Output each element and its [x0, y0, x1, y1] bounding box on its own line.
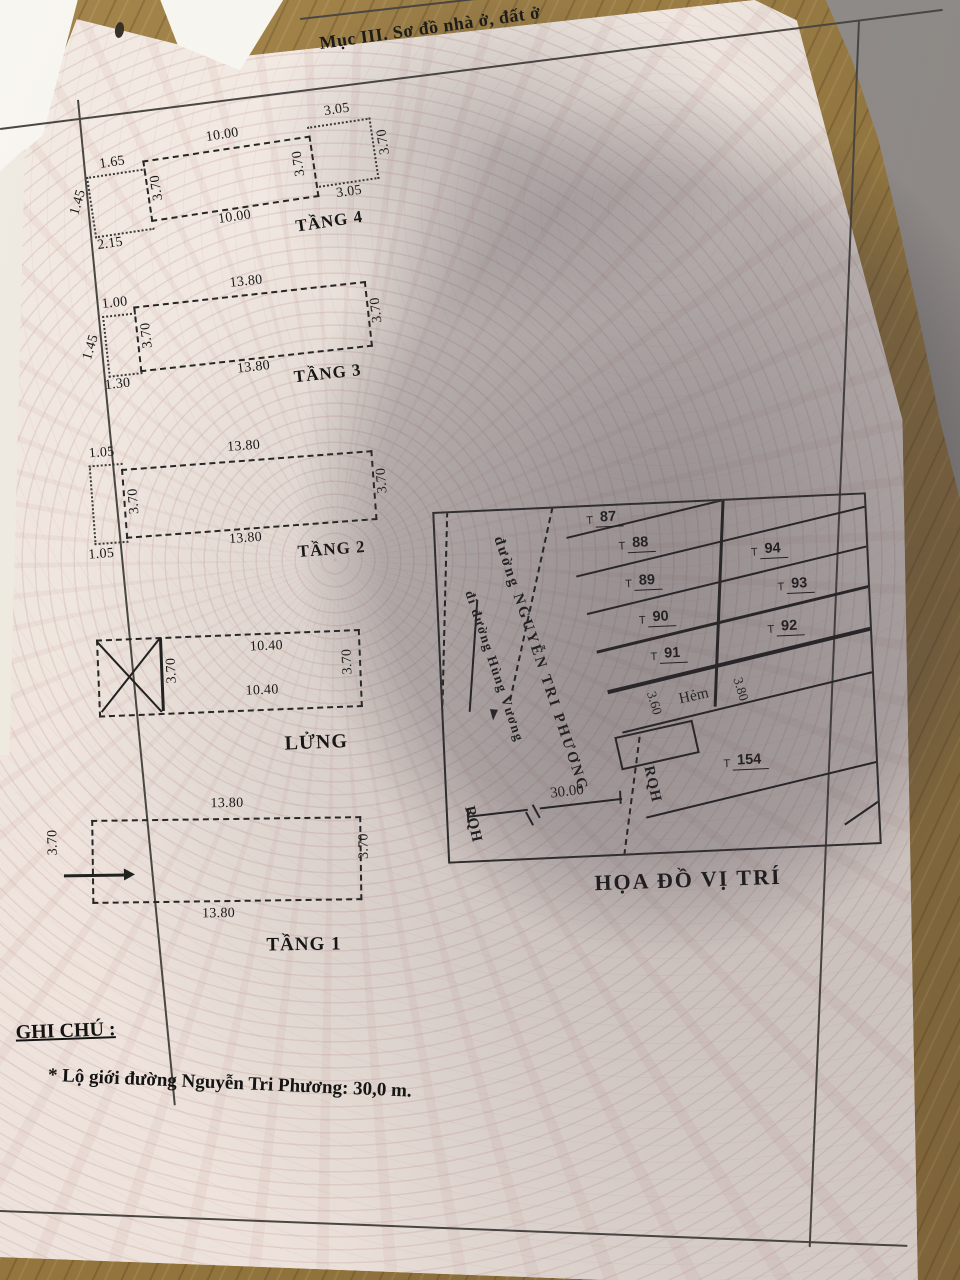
lung-dim-mid: 10.40: [245, 682, 279, 699]
lot-91: T91: [650, 644, 688, 664]
location-map: RQH đường NGUYỄN TRI PHƯƠNG đi đường Hùn…: [438, 480, 888, 915]
street-direction-arrow-head: [489, 709, 498, 721]
notes-line-1: * Lộ giới đường Nguyễn Tri Phương: 30,0 …: [47, 1065, 412, 1103]
lung-label: LỬNG: [284, 730, 348, 756]
tang1-outline: [91, 816, 362, 904]
road-width-label: 30.00: [549, 782, 584, 803]
tang1-dim-left: 3.70: [45, 830, 61, 856]
tang3-dim-bottom: 13.80: [236, 358, 271, 378]
road-width-line: [468, 798, 622, 818]
lot-line-87-top: [555, 492, 822, 506]
small-structure-outline: [614, 720, 699, 771]
tang2-dim-bottom: 13.80: [229, 530, 263, 548]
tang4-dim-bottom: 10.00: [217, 207, 252, 228]
tang2-label: TẦNG 2: [297, 537, 366, 562]
lot-column-boundary-line: [714, 495, 725, 707]
lot-90: T90: [638, 607, 676, 627]
tang2-dim-left: 3.70: [126, 488, 144, 515]
tang2-lext-top: 1.05: [88, 445, 115, 463]
tang4-rext-bottom: 3.05: [335, 183, 363, 203]
tang3-left-extension: [102, 312, 143, 377]
lot-94: T94: [750, 539, 788, 559]
rqh-left-dashed-line: [437, 511, 448, 863]
alley-label: Hẻm: [677, 684, 710, 708]
alley-width-right-label: 3.80: [730, 676, 752, 703]
tang1-dim-right: 3.70: [356, 833, 372, 859]
lung-outline: [96, 629, 363, 718]
map-corner-diagonal: [844, 798, 881, 826]
notes-heading: GHI CHÚ :: [15, 1018, 116, 1044]
floor-plan-tang1: 13.80 13.80 3.70 3.70 TẦNG 1: [57, 784, 404, 969]
tang1-entry-arrow-head: [124, 868, 135, 880]
lot-93: T93: [777, 574, 815, 594]
lot-88: T88: [618, 533, 656, 553]
road-width-tick-right: [619, 791, 622, 804]
tang2-outline: [121, 450, 378, 539]
tang4-right-extension: [307, 117, 379, 188]
lung-dim-divider: 3.70: [164, 657, 181, 683]
tang3-lext-side: 1.45: [80, 333, 103, 362]
lung-dim-top: 10.40: [250, 638, 284, 655]
tang2-dim-top: 13.80: [227, 438, 261, 456]
street-name-label: đường NGUYỄN TRI PHƯƠNG: [489, 534, 591, 794]
lot-92: T92: [767, 616, 805, 636]
notes-section: GHI CHÚ : * Lộ giới đường Nguyễn Tri Phư…: [9, 1011, 481, 1129]
tang3-lext-top: 1.00: [101, 294, 128, 313]
rqh-left-label: RQH: [460, 805, 485, 845]
tang1-dim-top: 13.80: [210, 796, 243, 812]
tang4-dim-top: 10.00: [205, 125, 240, 146]
tang2-dim-right: 3.70: [374, 467, 392, 494]
tang4-rext-side: 3.70: [374, 128, 394, 156]
tang3-dim-left: 3.70: [138, 322, 157, 349]
tang3-outline: [133, 281, 373, 372]
tang4-rext-top: 3.05: [323, 101, 351, 121]
floor-plan-lung: 10.40 10.40 3.70 3.70 LỬNG: [69, 603, 405, 771]
alley-width-left-label: 3.60: [643, 690, 665, 717]
tang1-label: TẦNG 1: [266, 933, 341, 956]
tang3-label: TẦNG 3: [293, 360, 363, 387]
tang1-dim-bottom: 13.80: [202, 906, 235, 922]
location-map-title: HỌA ĐỒ VỊ TRÍ: [594, 864, 782, 897]
location-map-frame: RQH đường NGUYỄN TRI PHƯƠNG đi đường Hùn…: [432, 492, 882, 863]
tang4-lext-top: 1.65: [98, 153, 126, 173]
tang4-left-extension: [86, 168, 155, 238]
tang2-lext-bottom: 1.05: [88, 546, 115, 564]
tang3-dim-top: 13.80: [229, 272, 264, 292]
lung-dim-right: 3.70: [340, 648, 357, 674]
lot-87: T87: [586, 507, 624, 527]
floor-plan-tang2: 13.80 13.80 3.70 3.70 1.05 1.05 TẦNG 2: [73, 420, 413, 589]
tang4-label: TẦNG 4: [294, 207, 364, 237]
lot-154: T154: [723, 750, 769, 770]
tang3-dim-right: 3.70: [368, 296, 387, 323]
rqh-right-label: RQH: [639, 764, 664, 804]
tang2-left-strip: [89, 463, 129, 545]
tang4-lext-bottom: 2.15: [96, 234, 124, 254]
tang3-lext-bottom: 1.30: [104, 375, 131, 394]
lot-89: T89: [625, 571, 663, 591]
